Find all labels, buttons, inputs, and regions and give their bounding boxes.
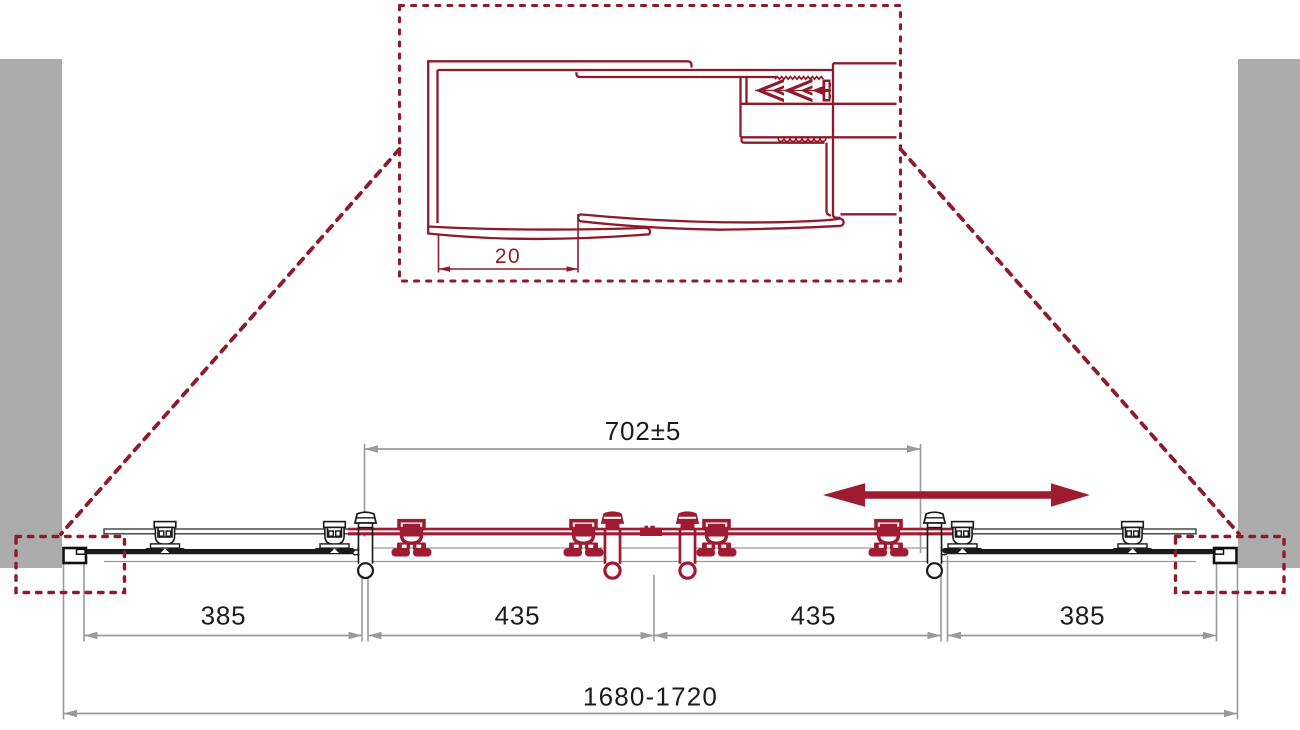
svg-text:435: 435: [495, 601, 541, 631]
svg-text:385: 385: [201, 601, 247, 631]
svg-text:20: 20: [495, 245, 521, 268]
svg-text:385: 385: [1060, 601, 1106, 631]
svg-text:702±5: 702±5: [605, 416, 682, 446]
svg-text:1680-1720: 1680-1720: [583, 682, 718, 712]
svg-text:435: 435: [791, 601, 837, 631]
